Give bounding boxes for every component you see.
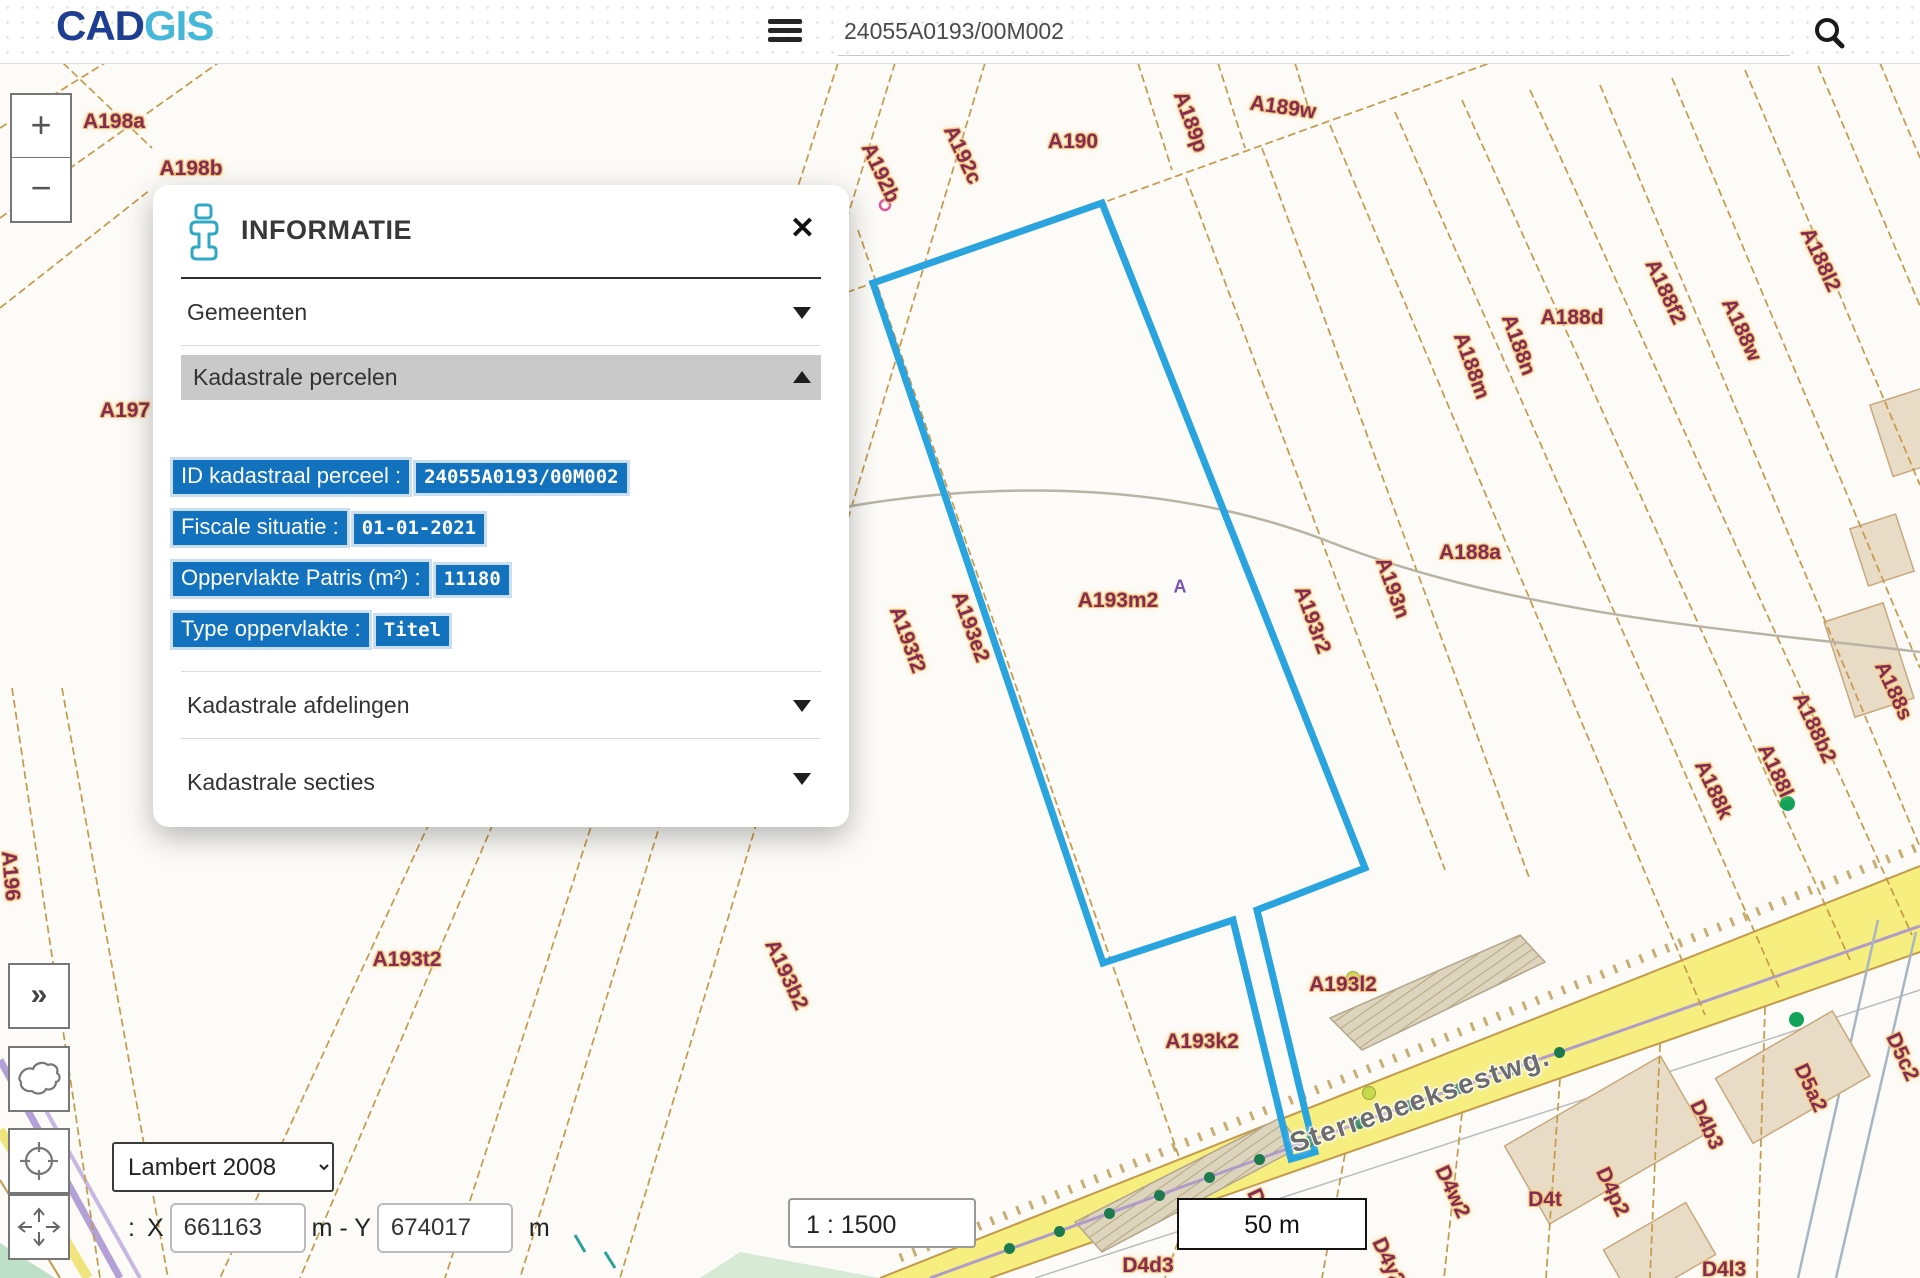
attribute-value: 24055A0193/00M002 — [416, 463, 626, 493]
tree-dot — [1554, 1047, 1565, 1058]
parcel-label: A193t2 — [373, 948, 442, 972]
search-input[interactable] — [842, 10, 1786, 52]
tree-dot — [1104, 1208, 1115, 1219]
logo-cad: CAD — [56, 2, 144, 49]
attribute-value: Titel — [376, 616, 449, 646]
parcel-label: A188d — [1540, 306, 1603, 330]
attribute-label: Fiscale situatie : — [173, 511, 347, 545]
tree-dot — [1789, 1012, 1804, 1027]
panel-title: INFORMATIE — [241, 215, 412, 246]
coord-prefix: : — [128, 1214, 135, 1242]
attribute-row: Oppervlakte Patris (m²) :11180 — [173, 562, 849, 596]
coord-unit: m — [529, 1214, 550, 1242]
attribute-value: 01-01-2021 — [354, 514, 484, 544]
minus-icon: − — [12, 158, 70, 218]
coord-x-input[interactable] — [170, 1203, 306, 1253]
parcel-label: A193l2 — [1309, 973, 1377, 997]
parcel-label: A — [1174, 577, 1187, 598]
pan-button[interactable] — [8, 1194, 70, 1260]
tree-dot — [1004, 1243, 1015, 1254]
tree-dot — [1204, 1172, 1215, 1183]
chevron-down-icon — [793, 307, 811, 319]
double-chevron-right-icon: » — [10, 965, 68, 1025]
geolocate-button[interactable] — [8, 1128, 70, 1194]
pan-arrows-icon — [10, 1196, 68, 1258]
parcel-label: D4t — [1528, 1188, 1562, 1212]
accordion-gemeenten[interactable]: Gemeenten — [181, 279, 821, 345]
accordion-kadastrale-percelen[interactable]: Kadastrale percelen — [181, 355, 821, 400]
attribute-row: Type oppervlakte :Titel — [173, 613, 849, 647]
belgium-extent-button[interactable] — [8, 1046, 70, 1112]
logo-gis: GIS — [144, 2, 213, 49]
accordion-label: Gemeenten — [187, 299, 307, 326]
tree-dot — [1054, 1226, 1065, 1237]
search-icon[interactable] — [1808, 12, 1852, 56]
menu-icon[interactable] — [768, 15, 804, 47]
info-panel: INFORMATIE ✕ Gemeenten Kadastrale percel… — [153, 185, 849, 827]
parcel-label: A198b — [159, 157, 222, 181]
cadgis-logo: CADGIS — [56, 2, 213, 50]
close-icon[interactable]: ✕ — [790, 211, 815, 246]
parcel-label: D4d3 — [1122, 1254, 1173, 1278]
parcel-attributes: ID kadastraal perceel :24055A0193/00M002… — [173, 460, 849, 647]
attribute-row: Fiscale situatie :01-01-2021 — [173, 511, 849, 545]
projection-select[interactable]: Lambert 2008 — [112, 1142, 334, 1192]
plus-icon: + — [12, 95, 70, 155]
belgium-outline-icon — [10, 1048, 68, 1110]
attribute-label: Oppervlakte Patris (m²) : — [173, 562, 429, 596]
accordion-label: Kadastrale afdelingen — [187, 692, 410, 719]
expand-toolbar-button[interactable]: » — [8, 963, 70, 1029]
tree-dot — [1154, 1190, 1165, 1201]
panel-divider — [181, 345, 821, 346]
cadgis-app: A198aA198bA197A196A193t2A193b2A192bA192c… — [0, 0, 1920, 1278]
tree-dot — [1254, 1154, 1265, 1165]
info-icon — [185, 203, 223, 266]
accordion-label: Kadastrale percelen — [193, 364, 398, 391]
parcel-label: A196 — [0, 850, 24, 902]
chevron-up-icon — [793, 371, 811, 383]
scalebar: 50 m — [1177, 1198, 1367, 1250]
accordion-label: Kadastrale secties — [187, 769, 375, 796]
coord-x-label: X — [147, 1214, 164, 1242]
attribute-value: 11180 — [436, 565, 509, 595]
coordinate-readout: :Xm - Ym — [122, 1203, 556, 1253]
parcel-label: A193m2 — [1078, 589, 1159, 613]
parcel-label: D4l3 — [1702, 1258, 1746, 1278]
app-header: CADGIS — [0, 0, 1920, 64]
selected-parcel-outline[interactable] — [873, 203, 1365, 1159]
scale-ratio-input[interactable]: 1 : 1500 — [788, 1198, 976, 1248]
parcel-label: A188a — [1439, 541, 1501, 565]
zoom-in-button[interactable]: + — [10, 93, 72, 159]
parcel-label: A190 — [1048, 130, 1098, 154]
attribute-row: ID kadastraal perceel :24055A0193/00M002 — [173, 460, 849, 494]
attribute-label: ID kadastraal perceel : — [173, 460, 409, 494]
accordion-kadastrale-afdelingen[interactable]: Kadastrale afdelingen — [181, 672, 821, 738]
info-panel-header: INFORMATIE ✕ — [153, 185, 849, 277]
search-underline — [838, 55, 1790, 56]
accordion-kadastrale-secties[interactable]: Kadastrale secties — [181, 739, 821, 819]
zoom-out-button[interactable]: − — [10, 157, 72, 223]
coord-separator: m - Y — [312, 1214, 371, 1242]
crosshair-icon — [10, 1130, 68, 1192]
chevron-down-icon — [793, 773, 811, 785]
parcel-label: A193k2 — [1165, 1030, 1239, 1054]
coord-y-input[interactable] — [377, 1203, 513, 1253]
parcel-label: A198a — [83, 110, 145, 134]
attribute-label: Type oppervlakte : — [173, 613, 369, 647]
parcel-label: A197 — [100, 399, 150, 423]
chevron-down-icon — [793, 700, 811, 712]
